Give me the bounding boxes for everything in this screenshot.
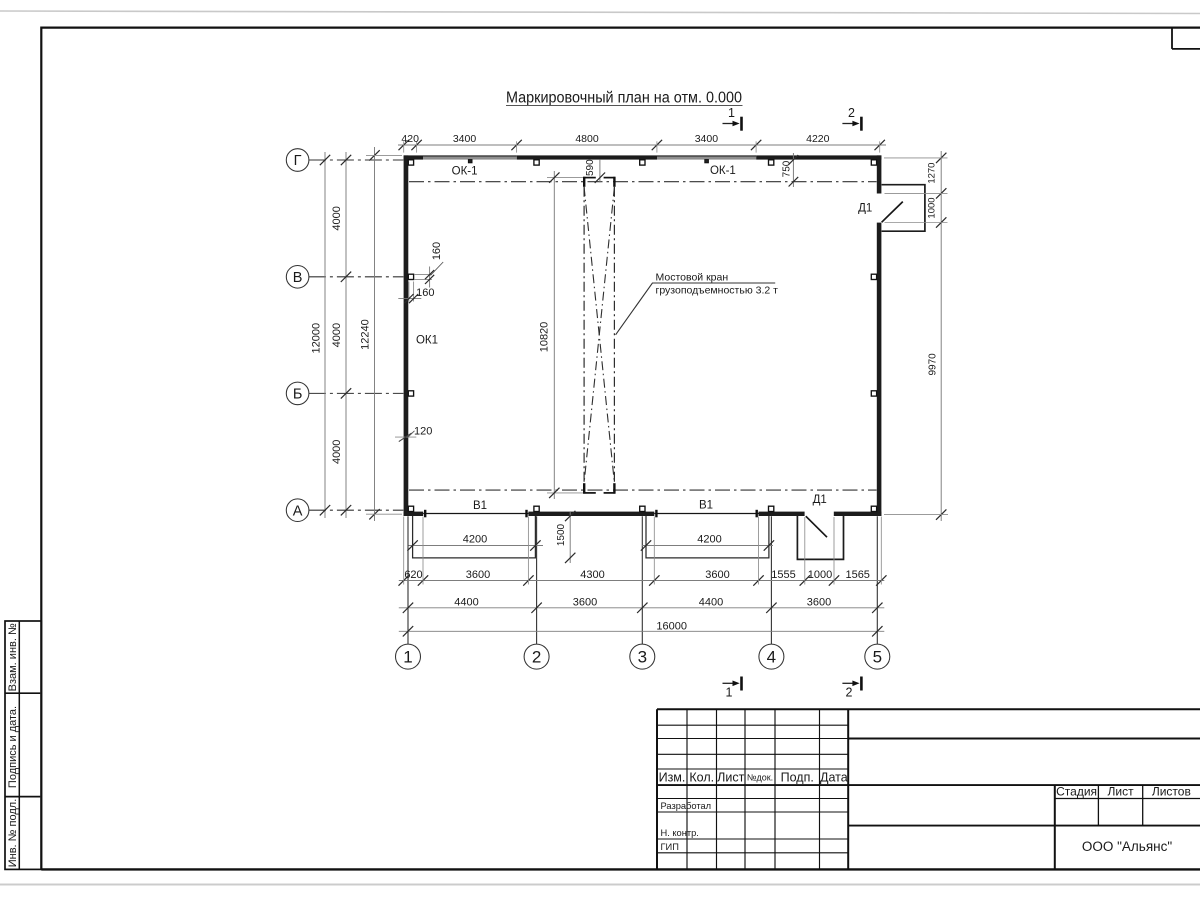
svg-text:9970: 9970 xyxy=(928,353,939,376)
svg-text:10820: 10820 xyxy=(539,322,551,353)
svg-text:Разработал: Разработал xyxy=(661,801,712,811)
svg-text:3400: 3400 xyxy=(695,133,719,145)
svg-text:Д1: Д1 xyxy=(813,494,827,506)
svg-text:12000: 12000 xyxy=(311,323,323,354)
svg-text:3: 3 xyxy=(638,648,647,667)
svg-text:1270: 1270 xyxy=(927,163,938,184)
svg-text:590: 590 xyxy=(585,159,596,176)
svg-text:Подпись и дата.: Подпись и дата. xyxy=(7,706,19,788)
svg-text:Взам. инв. №: Взам. инв. № xyxy=(7,623,19,691)
svg-text:5: 5 xyxy=(873,648,882,667)
svg-text:4800: 4800 xyxy=(575,133,599,145)
svg-text:4300: 4300 xyxy=(580,569,604,581)
svg-text:ОК-1: ОК-1 xyxy=(710,165,736,177)
svg-text:1000: 1000 xyxy=(927,197,938,218)
svg-text:2: 2 xyxy=(846,686,853,700)
svg-text:Инв. № подл.: Инв. № подл. xyxy=(7,799,19,868)
svg-text:Г: Г xyxy=(294,153,302,169)
svg-text:2: 2 xyxy=(848,106,855,120)
svg-text:1: 1 xyxy=(726,686,733,700)
svg-text:Маркировочный план на отм. 0.0: Маркировочный план на отм. 0.000 xyxy=(506,90,742,107)
svg-text:120: 120 xyxy=(414,425,432,437)
svg-text:4000: 4000 xyxy=(331,206,343,230)
svg-text:В: В xyxy=(293,270,303,286)
svg-text:1565: 1565 xyxy=(845,569,869,581)
svg-text:ООО "Альянс": ООО "Альянс" xyxy=(1082,839,1172,854)
svg-text:4200: 4200 xyxy=(697,533,721,545)
svg-text:16000: 16000 xyxy=(656,620,687,632)
svg-text:160: 160 xyxy=(431,242,443,260)
svg-text:ОК-1: ОК-1 xyxy=(452,166,478,178)
svg-text:4200: 4200 xyxy=(463,533,487,545)
svg-text:Н. контр.: Н. контр. xyxy=(661,828,699,838)
svg-text:Листов: Листов xyxy=(1152,785,1191,799)
svg-text:В1: В1 xyxy=(699,500,713,512)
svg-text:160: 160 xyxy=(416,287,434,299)
svg-text:750: 750 xyxy=(782,160,793,177)
svg-text:А: А xyxy=(293,503,303,519)
svg-text:Подп.: Подп. xyxy=(781,771,814,785)
svg-text:№док.: №док. xyxy=(747,773,773,783)
svg-text:4: 4 xyxy=(767,648,776,667)
svg-text:3600: 3600 xyxy=(705,569,729,581)
svg-text:1: 1 xyxy=(728,106,735,120)
svg-text:620: 620 xyxy=(404,569,422,581)
svg-text:3600: 3600 xyxy=(466,569,490,581)
svg-text:1: 1 xyxy=(403,648,412,667)
svg-text:ОК1: ОК1 xyxy=(416,335,438,347)
svg-text:Дата: Дата xyxy=(820,771,848,785)
svg-text:1000: 1000 xyxy=(808,569,832,581)
svg-text:4000: 4000 xyxy=(331,440,343,464)
svg-text:ГИП: ГИП xyxy=(661,842,679,852)
svg-text:4400: 4400 xyxy=(454,596,478,608)
svg-text:В1: В1 xyxy=(473,500,487,512)
svg-text:3400: 3400 xyxy=(453,133,477,145)
svg-text:2: 2 xyxy=(532,648,541,667)
svg-text:грузоподъемностью 3.2 т: грузоподъемностью 3.2 т xyxy=(656,284,779,296)
svg-text:1500: 1500 xyxy=(556,523,567,546)
svg-text:Лист: Лист xyxy=(1108,785,1135,799)
svg-text:3600: 3600 xyxy=(573,596,597,608)
svg-text:1555: 1555 xyxy=(771,569,795,581)
svg-text:Кол.: Кол. xyxy=(689,771,714,785)
svg-text:Д1: Д1 xyxy=(858,203,872,215)
svg-text:Б: Б xyxy=(293,387,303,403)
svg-text:Лист: Лист xyxy=(717,771,744,785)
svg-text:4220: 4220 xyxy=(806,133,830,145)
svg-text:4000: 4000 xyxy=(331,323,343,347)
svg-text:Мостовой кран: Мостовой кран xyxy=(656,272,729,284)
svg-text:420: 420 xyxy=(401,133,419,145)
svg-text:4400: 4400 xyxy=(699,596,723,608)
svg-text:Стадия: Стадия xyxy=(1056,785,1097,799)
svg-text:Изм.: Изм. xyxy=(659,771,686,785)
svg-text:3600: 3600 xyxy=(807,596,831,608)
svg-text:12240: 12240 xyxy=(360,319,372,350)
